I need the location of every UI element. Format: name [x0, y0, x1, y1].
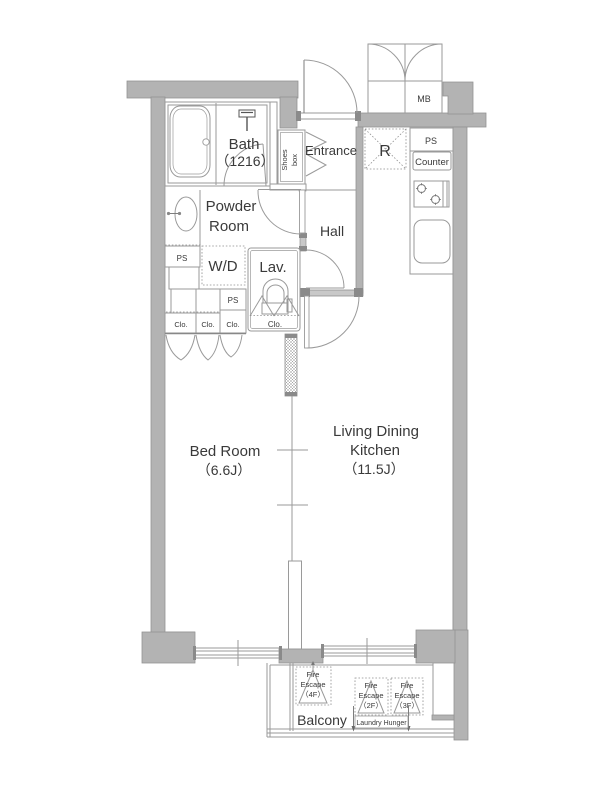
svg-text:Lav.: Lav. [259, 259, 286, 276]
svg-text:MB: MB [417, 94, 431, 104]
svg-text:Escape: Escape [394, 691, 419, 700]
svg-text:Clo.: Clo. [268, 320, 282, 329]
svg-text:Fire: Fire [307, 670, 320, 679]
svg-text:PS: PS [177, 254, 188, 263]
svg-text:（1216）: （1216） [215, 153, 274, 169]
svg-text:Powder: Powder [206, 198, 257, 215]
svg-text:Entrance: Entrance [305, 143, 357, 158]
svg-text:（4F）: （4F） [301, 690, 325, 699]
svg-text:Hall: Hall [320, 223, 344, 239]
svg-text:PS: PS [228, 296, 239, 305]
svg-text:（6.6J）: （6.6J） [197, 462, 251, 478]
svg-text:Clo.: Clo. [226, 320, 239, 329]
svg-text:Escape: Escape [358, 691, 383, 700]
svg-text:Room: Room [209, 218, 249, 235]
svg-text:Clo.: Clo. [174, 320, 187, 329]
svg-text:Laundry Hunger: Laundry Hunger [356, 720, 407, 727]
svg-text:Escape: Escape [300, 680, 325, 689]
svg-text:Clo.: Clo. [201, 320, 214, 329]
svg-text:PS: PS [425, 136, 437, 146]
svg-text:Balcony: Balcony [297, 712, 347, 728]
svg-text:Shoes: Shoes [280, 149, 289, 171]
svg-text:Fire: Fire [365, 681, 378, 690]
svg-text:W/D: W/D [208, 258, 237, 275]
svg-text:Kitchen: Kitchen [350, 442, 400, 459]
svg-text:（11.5J）: （11.5J） [343, 461, 404, 477]
svg-text:Bed Room: Bed Room [190, 443, 261, 460]
svg-text:box: box [290, 154, 299, 166]
svg-text:Counter: Counter [415, 157, 449, 168]
svg-text:Bath: Bath [229, 136, 260, 153]
svg-text:（3F）: （3F） [395, 701, 419, 710]
svg-text:Living Dining: Living Dining [333, 423, 419, 440]
svg-text:R: R [379, 143, 391, 160]
svg-text:Fire: Fire [401, 681, 414, 690]
svg-text:（2F）: （2F） [359, 701, 383, 710]
